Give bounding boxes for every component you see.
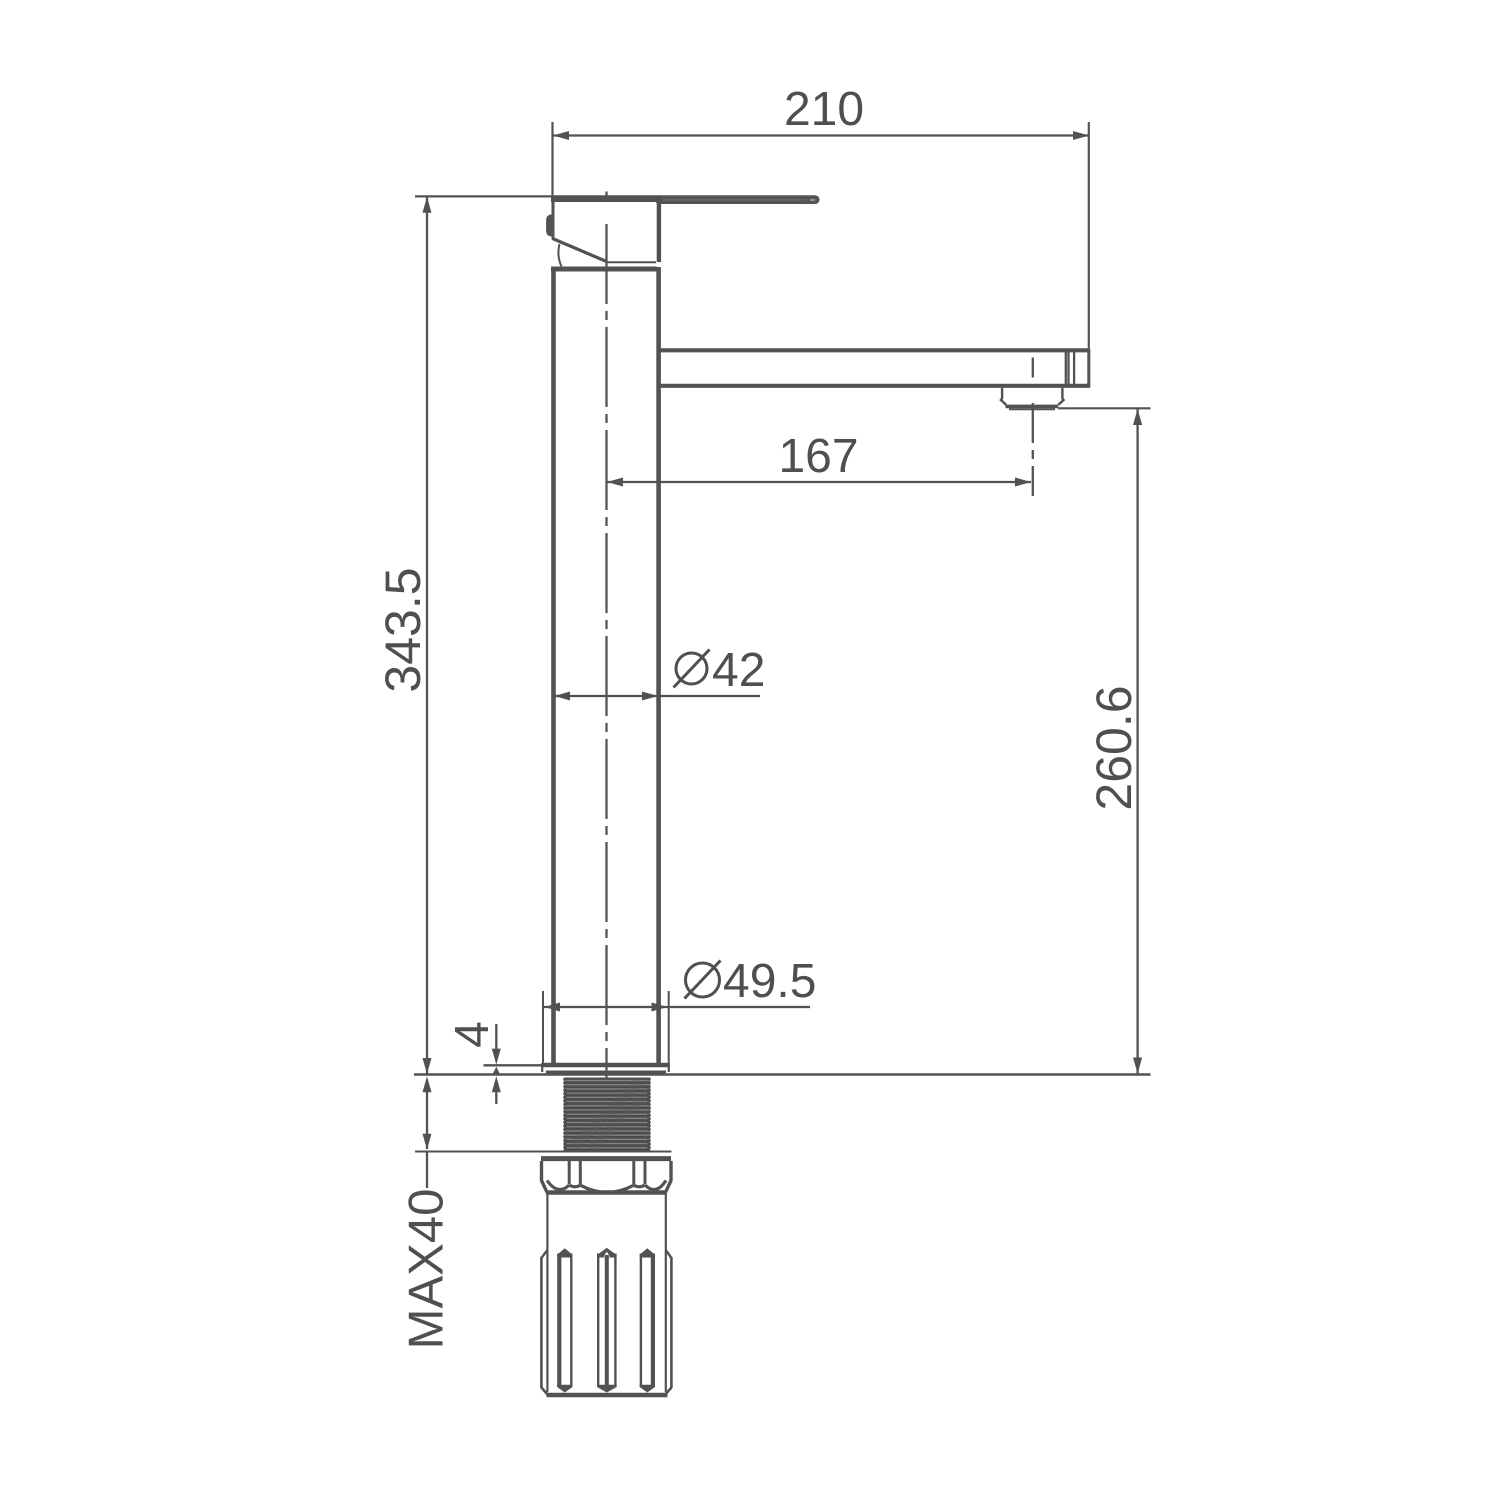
svg-text:167: 167 xyxy=(778,430,858,483)
svg-text:343.5: 343.5 xyxy=(375,567,431,692)
svg-text:210: 210 xyxy=(784,83,864,136)
svg-text:4: 4 xyxy=(446,1021,499,1048)
svg-text:49.5: 49.5 xyxy=(723,955,816,1008)
svg-text:42: 42 xyxy=(712,644,765,697)
svg-text:MAX40: MAX40 xyxy=(400,1189,454,1350)
svg-text:260.6: 260.6 xyxy=(1086,685,1142,810)
